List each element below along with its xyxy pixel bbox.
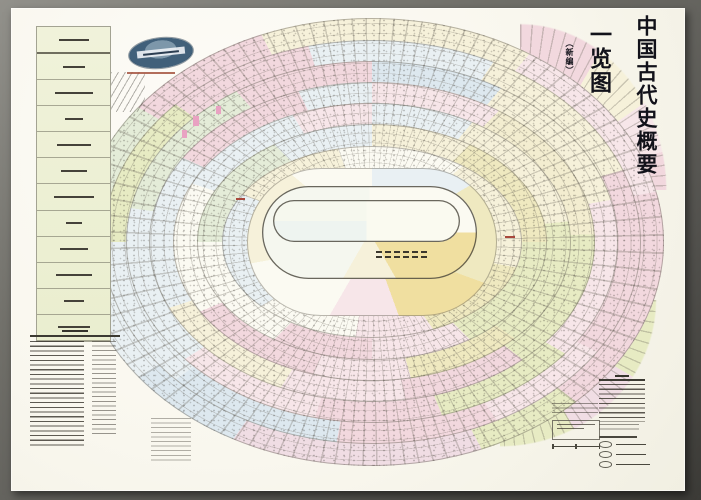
emblem-title-band (137, 47, 185, 59)
diagonal-caption-lines (111, 72, 145, 112)
key-label-line (599, 436, 637, 438)
publisher-globe-emblem-icon (128, 35, 195, 72)
symbol-key-row (599, 436, 650, 438)
symbol-key-row (599, 441, 650, 448)
imprint-box (552, 420, 600, 440)
magenta-cell-accent (182, 130, 187, 138)
bottom-caption-lines (151, 418, 191, 464)
era-table-row (37, 54, 110, 80)
poster-title-note: （新编） (564, 39, 575, 75)
colophon-rule (599, 379, 645, 381)
colophon-header-line (615, 375, 629, 377)
dense-caption-cluster (376, 251, 428, 261)
oval-symbol-icon (599, 451, 612, 458)
era-table-row (37, 106, 110, 132)
red-label-accent (236, 198, 245, 200)
colophon-notes-block (599, 375, 645, 422)
scale-bar (552, 446, 600, 453)
poster-title-main: 中国古代史概要 (633, 15, 658, 176)
legend-text-lines (92, 341, 116, 437)
era-table-column (36, 26, 111, 342)
timeline-ring-center (273, 200, 460, 242)
oval-symbol-icon (599, 461, 612, 468)
oval-symbol-icon (599, 441, 612, 448)
era-table-row (37, 289, 110, 315)
publisher-name-line (127, 72, 175, 74)
magenta-cell-accent (193, 116, 199, 126)
legend-header-line (62, 330, 88, 332)
poster-title-block: 中国古代史概要 一览图 （新编） (556, 13, 660, 189)
legend-notes-block (30, 330, 120, 460)
era-table-row (37, 184, 110, 210)
legend-text-lines (30, 341, 84, 447)
colophon-sub-lines (599, 424, 639, 433)
key-label-line (616, 444, 646, 446)
key-label-line (616, 454, 646, 456)
legend-rule (30, 335, 120, 337)
era-table-row (37, 27, 110, 54)
era-table-row (37, 263, 110, 289)
symbol-key-row (599, 461, 650, 468)
symbol-key-row (599, 451, 650, 458)
era-table-row (37, 80, 110, 106)
era-table-row (37, 237, 110, 263)
poster-paper: 中国古代史概要 一览图 （新编） (11, 8, 685, 491)
key-label-line (616, 464, 650, 466)
era-table-row (37, 132, 110, 158)
magenta-cell-accent (216, 106, 221, 114)
imprint-caption-lines (552, 403, 598, 417)
era-table-row (37, 158, 110, 184)
era-table-row (37, 211, 110, 237)
symbol-key (599, 436, 650, 468)
colophon-text-lines (599, 384, 645, 422)
red-label-accent (505, 236, 515, 238)
poster-title-sub: 一览图 (586, 23, 612, 95)
